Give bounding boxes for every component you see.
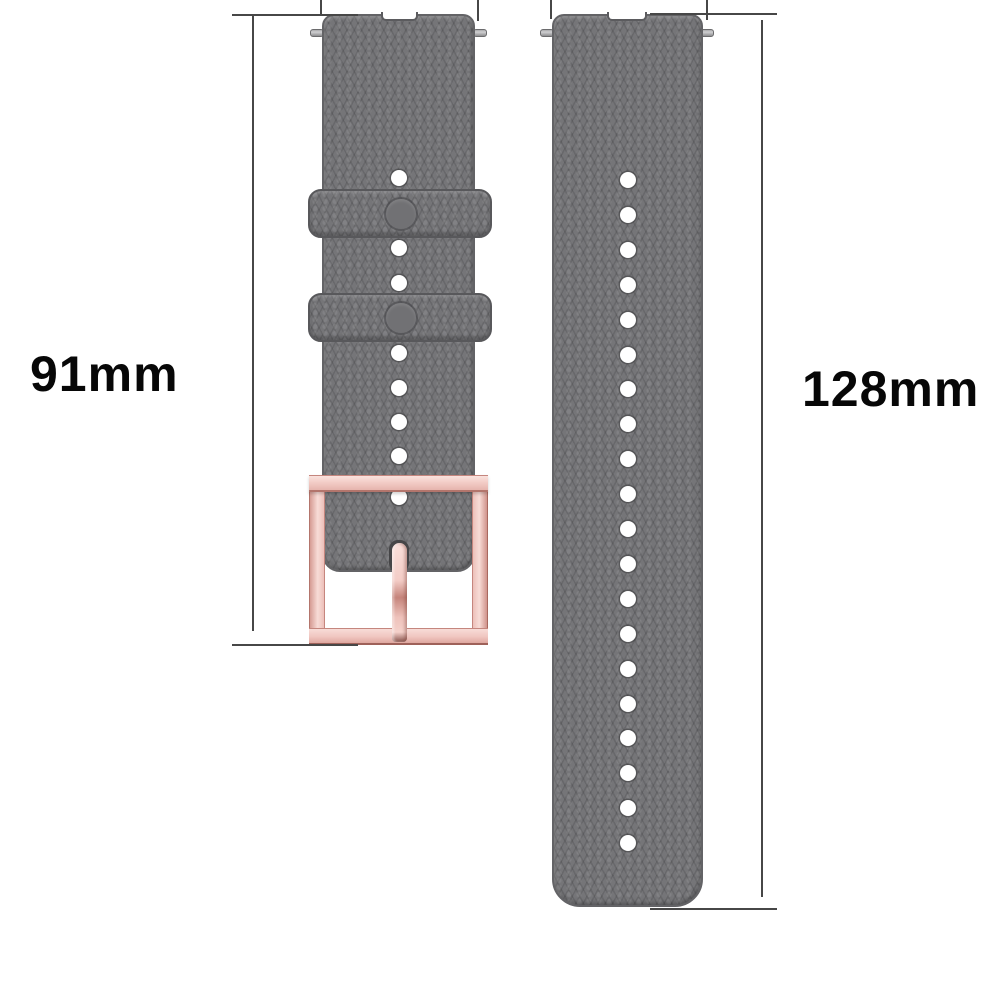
left-width-tick bbox=[477, 0, 479, 21]
spring-bar-pin bbox=[473, 29, 487, 37]
keeper-loop bbox=[308, 293, 492, 342]
right-strap-holes bbox=[0, 0, 1000, 1000]
right-width-tick bbox=[550, 0, 552, 19]
right-dim-line bbox=[761, 20, 763, 897]
left-strap-holes bbox=[0, 0, 1000, 1000]
right-dim-extension-top bbox=[650, 13, 777, 15]
right-width-tick bbox=[706, 0, 708, 20]
buckle-top-bar bbox=[309, 475, 488, 492]
keeper-button bbox=[386, 199, 416, 229]
right-dim-extension-bottom bbox=[650, 908, 777, 910]
buckle-left-post bbox=[309, 475, 325, 645]
right-measurement-label: 128mm bbox=[802, 364, 979, 414]
right-strap-body bbox=[552, 14, 703, 907]
buckle-prong bbox=[392, 543, 407, 642]
left-strap-lug-notch bbox=[381, 12, 418, 21]
watch-band-product-image: 91mm 128mm bbox=[0, 0, 1000, 1000]
left-dim-extension-bottom bbox=[232, 644, 358, 646]
left-dim-extension-top bbox=[232, 14, 358, 16]
left-measurement-label: 91mm bbox=[30, 349, 179, 399]
buckle-right-post bbox=[472, 475, 488, 645]
left-dim-line bbox=[252, 15, 254, 631]
keeper-loop bbox=[308, 189, 492, 238]
keeper-button bbox=[386, 303, 416, 333]
right-strap-lug-notch bbox=[607, 12, 647, 21]
